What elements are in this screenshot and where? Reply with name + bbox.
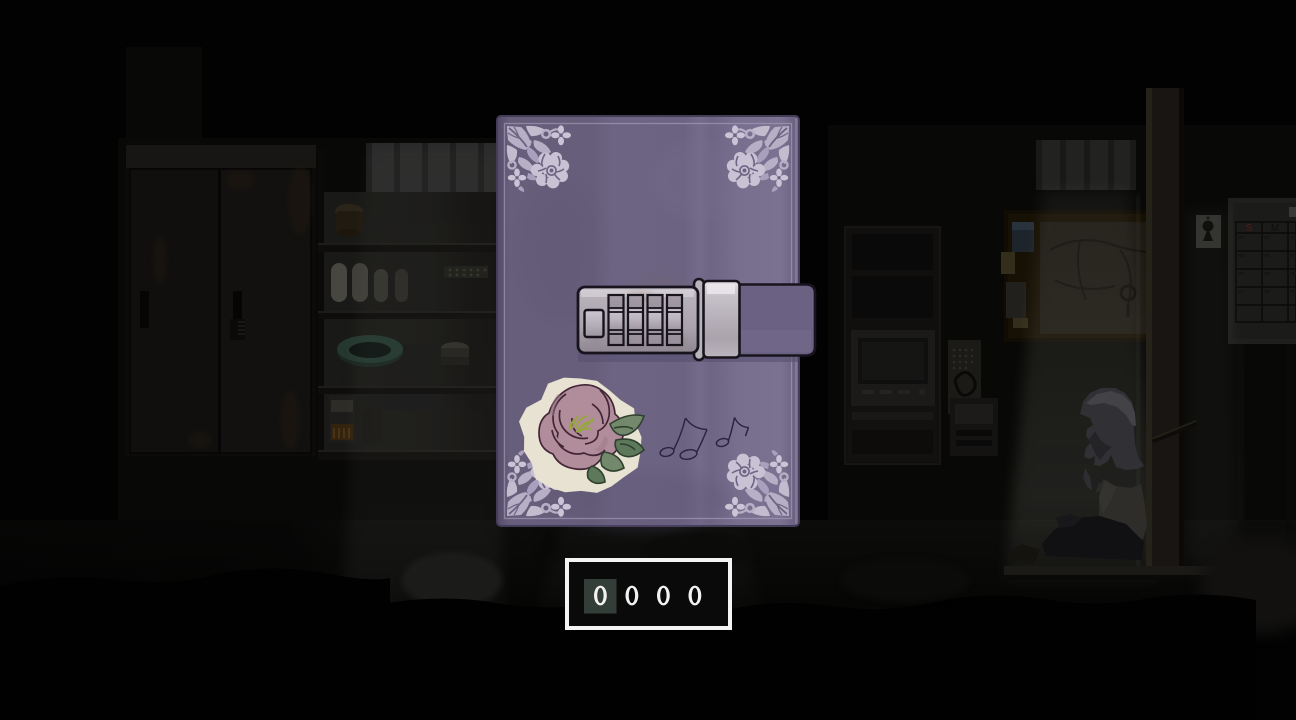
svg-text:M: M xyxy=(1271,223,1279,234)
svg-text:S: S xyxy=(1246,223,1253,234)
